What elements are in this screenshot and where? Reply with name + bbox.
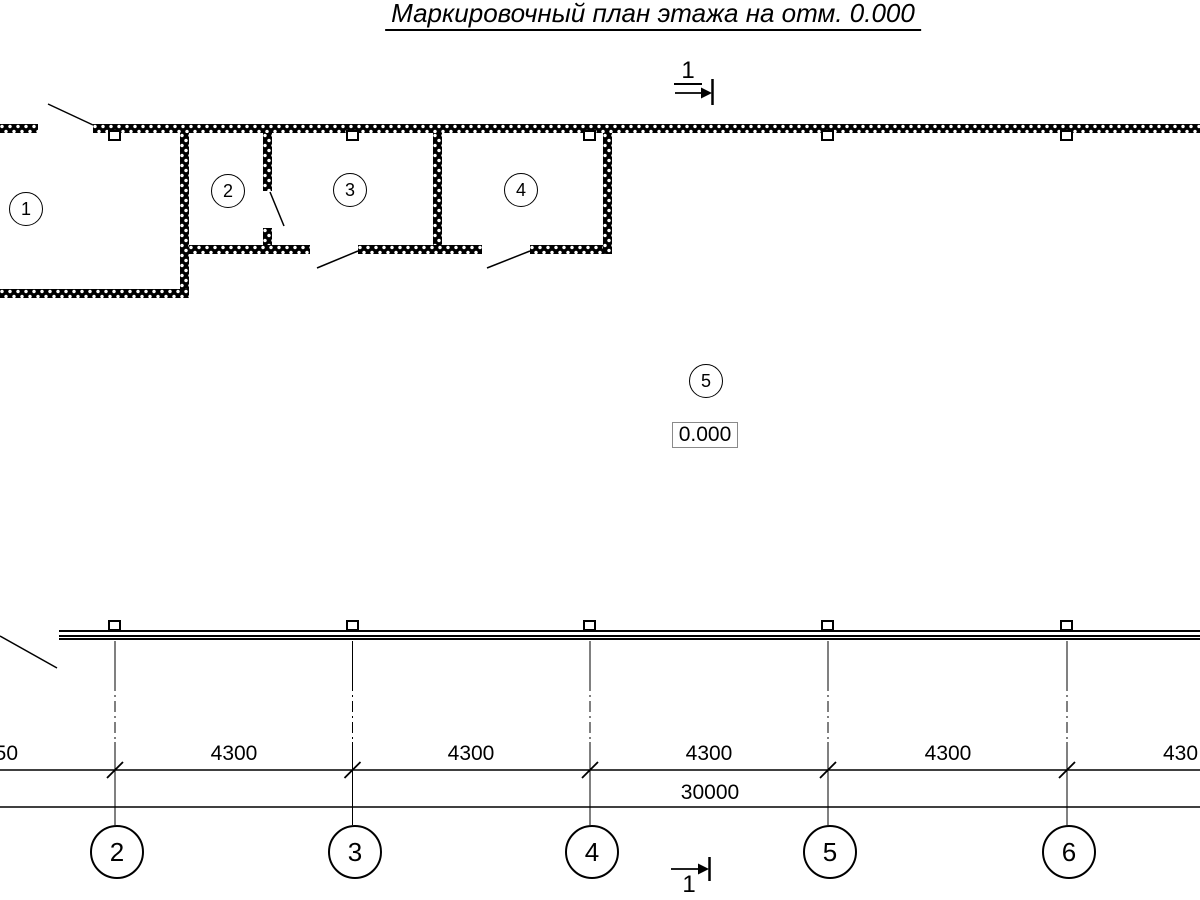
room-tag-2-label: 2 bbox=[223, 181, 233, 202]
axis-bubble-4: 4 bbox=[565, 825, 619, 879]
grid-axis-2 bbox=[107, 641, 123, 825]
axis-bubble-5: 5 bbox=[803, 825, 857, 879]
grid-tag-top-axis4 bbox=[583, 130, 596, 141]
axis-bubble-5-label: 5 bbox=[823, 837, 837, 868]
door-leaf-room1-top bbox=[48, 104, 93, 125]
room-tag-1: 1 bbox=[9, 192, 43, 226]
linework-layer bbox=[0, 0, 1200, 900]
room-tag-4-label: 4 bbox=[516, 180, 526, 201]
room-tag-2: 2 bbox=[211, 174, 245, 208]
section-label-top: 1 bbox=[674, 58, 702, 85]
dim-segment-3: 4300 bbox=[679, 742, 739, 766]
dim-segment-4: 4300 bbox=[918, 742, 978, 766]
grid-tag-top-axis2 bbox=[108, 130, 121, 141]
grid-tag-top-axis6 bbox=[1060, 130, 1073, 141]
room-tag-5: 5 bbox=[689, 364, 723, 398]
grid-tag-top-axis5 bbox=[821, 130, 834, 141]
grid-axis-4 bbox=[582, 641, 598, 825]
door-leaf-room2 bbox=[270, 192, 284, 226]
floor-plan-canvas: Маркировочный план этажа на отм. 0.000 bbox=[0, 0, 1200, 900]
room-tag-4: 4 bbox=[504, 173, 538, 207]
axis-bubble-2-label: 2 bbox=[110, 837, 124, 868]
grid-tag-bottom-axis5 bbox=[821, 620, 834, 631]
elevation-value: 0.000 bbox=[679, 423, 732, 447]
grid-tag-bottom-axis4 bbox=[583, 620, 596, 631]
dim-left-partial: 50 bbox=[0, 742, 18, 766]
axis-bubble-6: 6 bbox=[1042, 825, 1096, 879]
grid-tag-top-axis3 bbox=[346, 130, 359, 141]
axis-bubble-4-label: 4 bbox=[585, 837, 599, 868]
elevation-mark-box: 0.000 bbox=[672, 422, 738, 448]
room-tag-5-label: 5 bbox=[701, 371, 711, 392]
door-leaf-room4 bbox=[487, 251, 530, 268]
dim-segment-1: 4300 bbox=[204, 742, 264, 766]
drawing-title: Маркировочный план этажа на отм. 0.000 bbox=[385, 0, 921, 31]
axis-bubble-3-label: 3 bbox=[348, 837, 362, 868]
axis-bubble-3: 3 bbox=[328, 825, 382, 879]
grid-axis-5 bbox=[820, 641, 836, 825]
axis-bubble-6-label: 6 bbox=[1062, 837, 1076, 868]
room-tag-3: 3 bbox=[333, 173, 367, 207]
room-tag-3-label: 3 bbox=[345, 180, 355, 201]
grid-axis-6 bbox=[1059, 641, 1075, 825]
grid-tag-bottom-axis6 bbox=[1060, 620, 1073, 631]
grid-tag-bottom-axis2 bbox=[108, 620, 121, 631]
section-label-bottom: 1 bbox=[675, 872, 703, 897]
dim-total: 30000 bbox=[680, 781, 740, 805]
room-tag-1-label: 1 bbox=[21, 199, 31, 220]
dim-segment-2: 4300 bbox=[441, 742, 501, 766]
door-leaf-room3 bbox=[317, 251, 358, 268]
dim-right-partial: 430 bbox=[1163, 742, 1200, 766]
door-leaf-facade bbox=[0, 636, 57, 668]
axis-bubble-2: 2 bbox=[90, 825, 144, 879]
grid-axis-3 bbox=[345, 641, 361, 825]
grid-tag-bottom-axis3 bbox=[346, 620, 359, 631]
section-arrowhead-icon bbox=[701, 88, 712, 99]
